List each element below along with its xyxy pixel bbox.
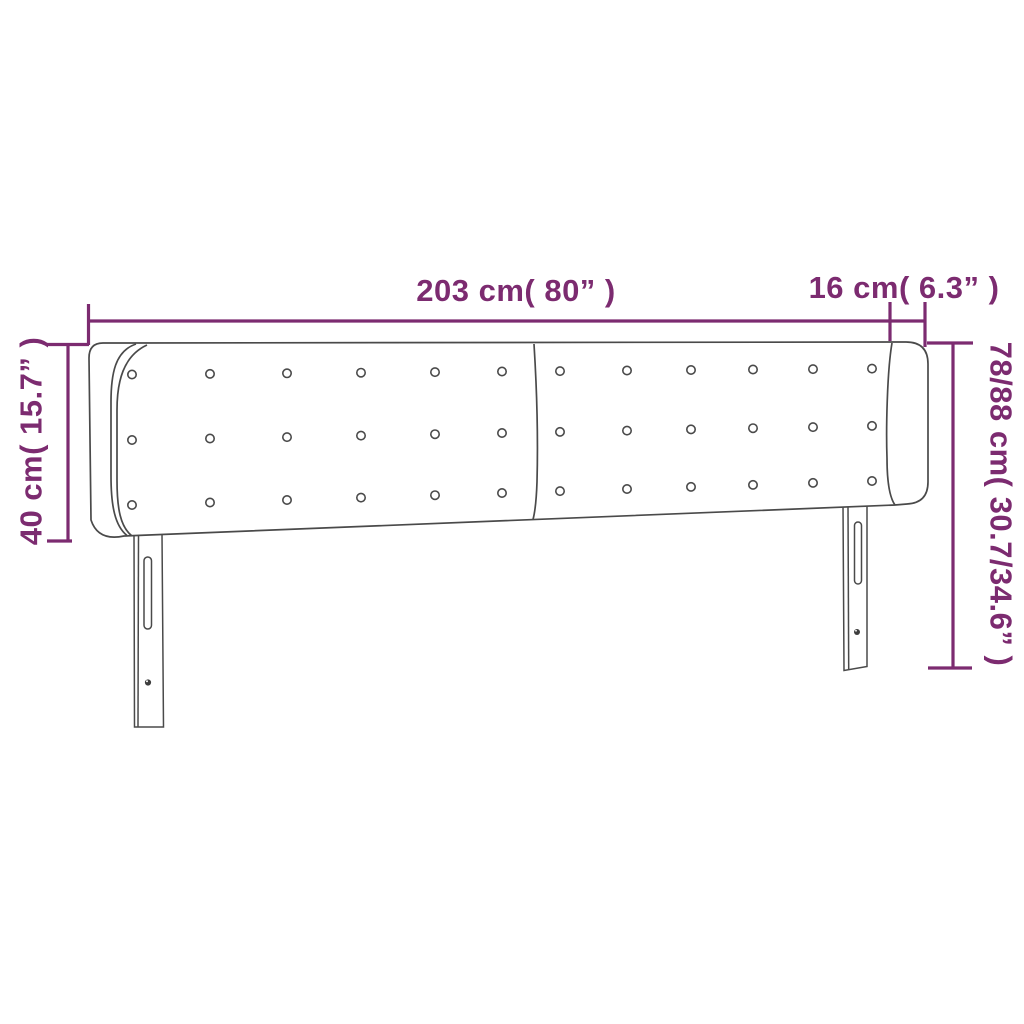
tufting-button [687,483,695,491]
tufting-button [749,481,757,489]
right-leg-screw [854,629,860,635]
tufting-button [687,425,695,433]
right-leg-screw-highlight [855,630,857,632]
right-leg-edge-line [848,506,849,670]
tufting-button [623,426,631,434]
tufting-button [206,370,214,378]
tufting-button [749,424,757,432]
tufting-button [556,428,564,436]
left-leg-screw-highlight [146,680,148,682]
tufting-button [868,364,876,372]
tufting-button [498,429,506,437]
tufting-button [687,366,695,374]
tufting-button [206,498,214,506]
dimension-diagram-page: 203 cm( 80” ) 16 cm( 6.3” ) 40 cm( 15.7”… [0,0,1024,1024]
tufting-button [623,366,631,374]
tufting-button [749,365,757,373]
overall-height-label: 78/88 cm( 30.7/34.6” ) [984,342,1019,667]
headboard-dimension-diagram: 203 cm( 80” ) 16 cm( 6.3” ) 40 cm( 15.7”… [0,0,1024,1024]
tufting-button [556,367,564,375]
tufting-button [868,477,876,485]
tufting-button [283,433,291,441]
tufting-button [431,368,439,376]
tufting-button [623,485,631,493]
tufting-button [809,479,817,487]
tufting-button [809,365,817,373]
ear-depth-label: 16 cm( 6.3” ) [809,270,1000,305]
tufting-button [431,430,439,438]
tufting-button [498,367,506,375]
left-leg-screw [145,679,151,685]
headboard-height-label: 40 cm( 15.7” ) [14,337,49,546]
tufting-button [283,496,291,504]
tufting-button [556,487,564,495]
tufting-button [498,489,506,497]
legs [134,505,867,727]
tufting-button [128,370,136,378]
tufting-button [206,434,214,442]
tufting-button [128,436,136,444]
left-leg [134,534,164,727]
total-width-label: 203 cm( 80” ) [416,273,616,308]
left-leg-edge-line [138,535,139,727]
tufting-button [809,423,817,431]
tufting-button [357,431,365,439]
tufting-button [357,493,365,501]
tufting-button [357,369,365,377]
tufting-button [431,491,439,499]
right-leg [843,505,867,671]
tufting-button [868,422,876,430]
tufting-button [283,369,291,377]
tufting-button [128,501,136,509]
